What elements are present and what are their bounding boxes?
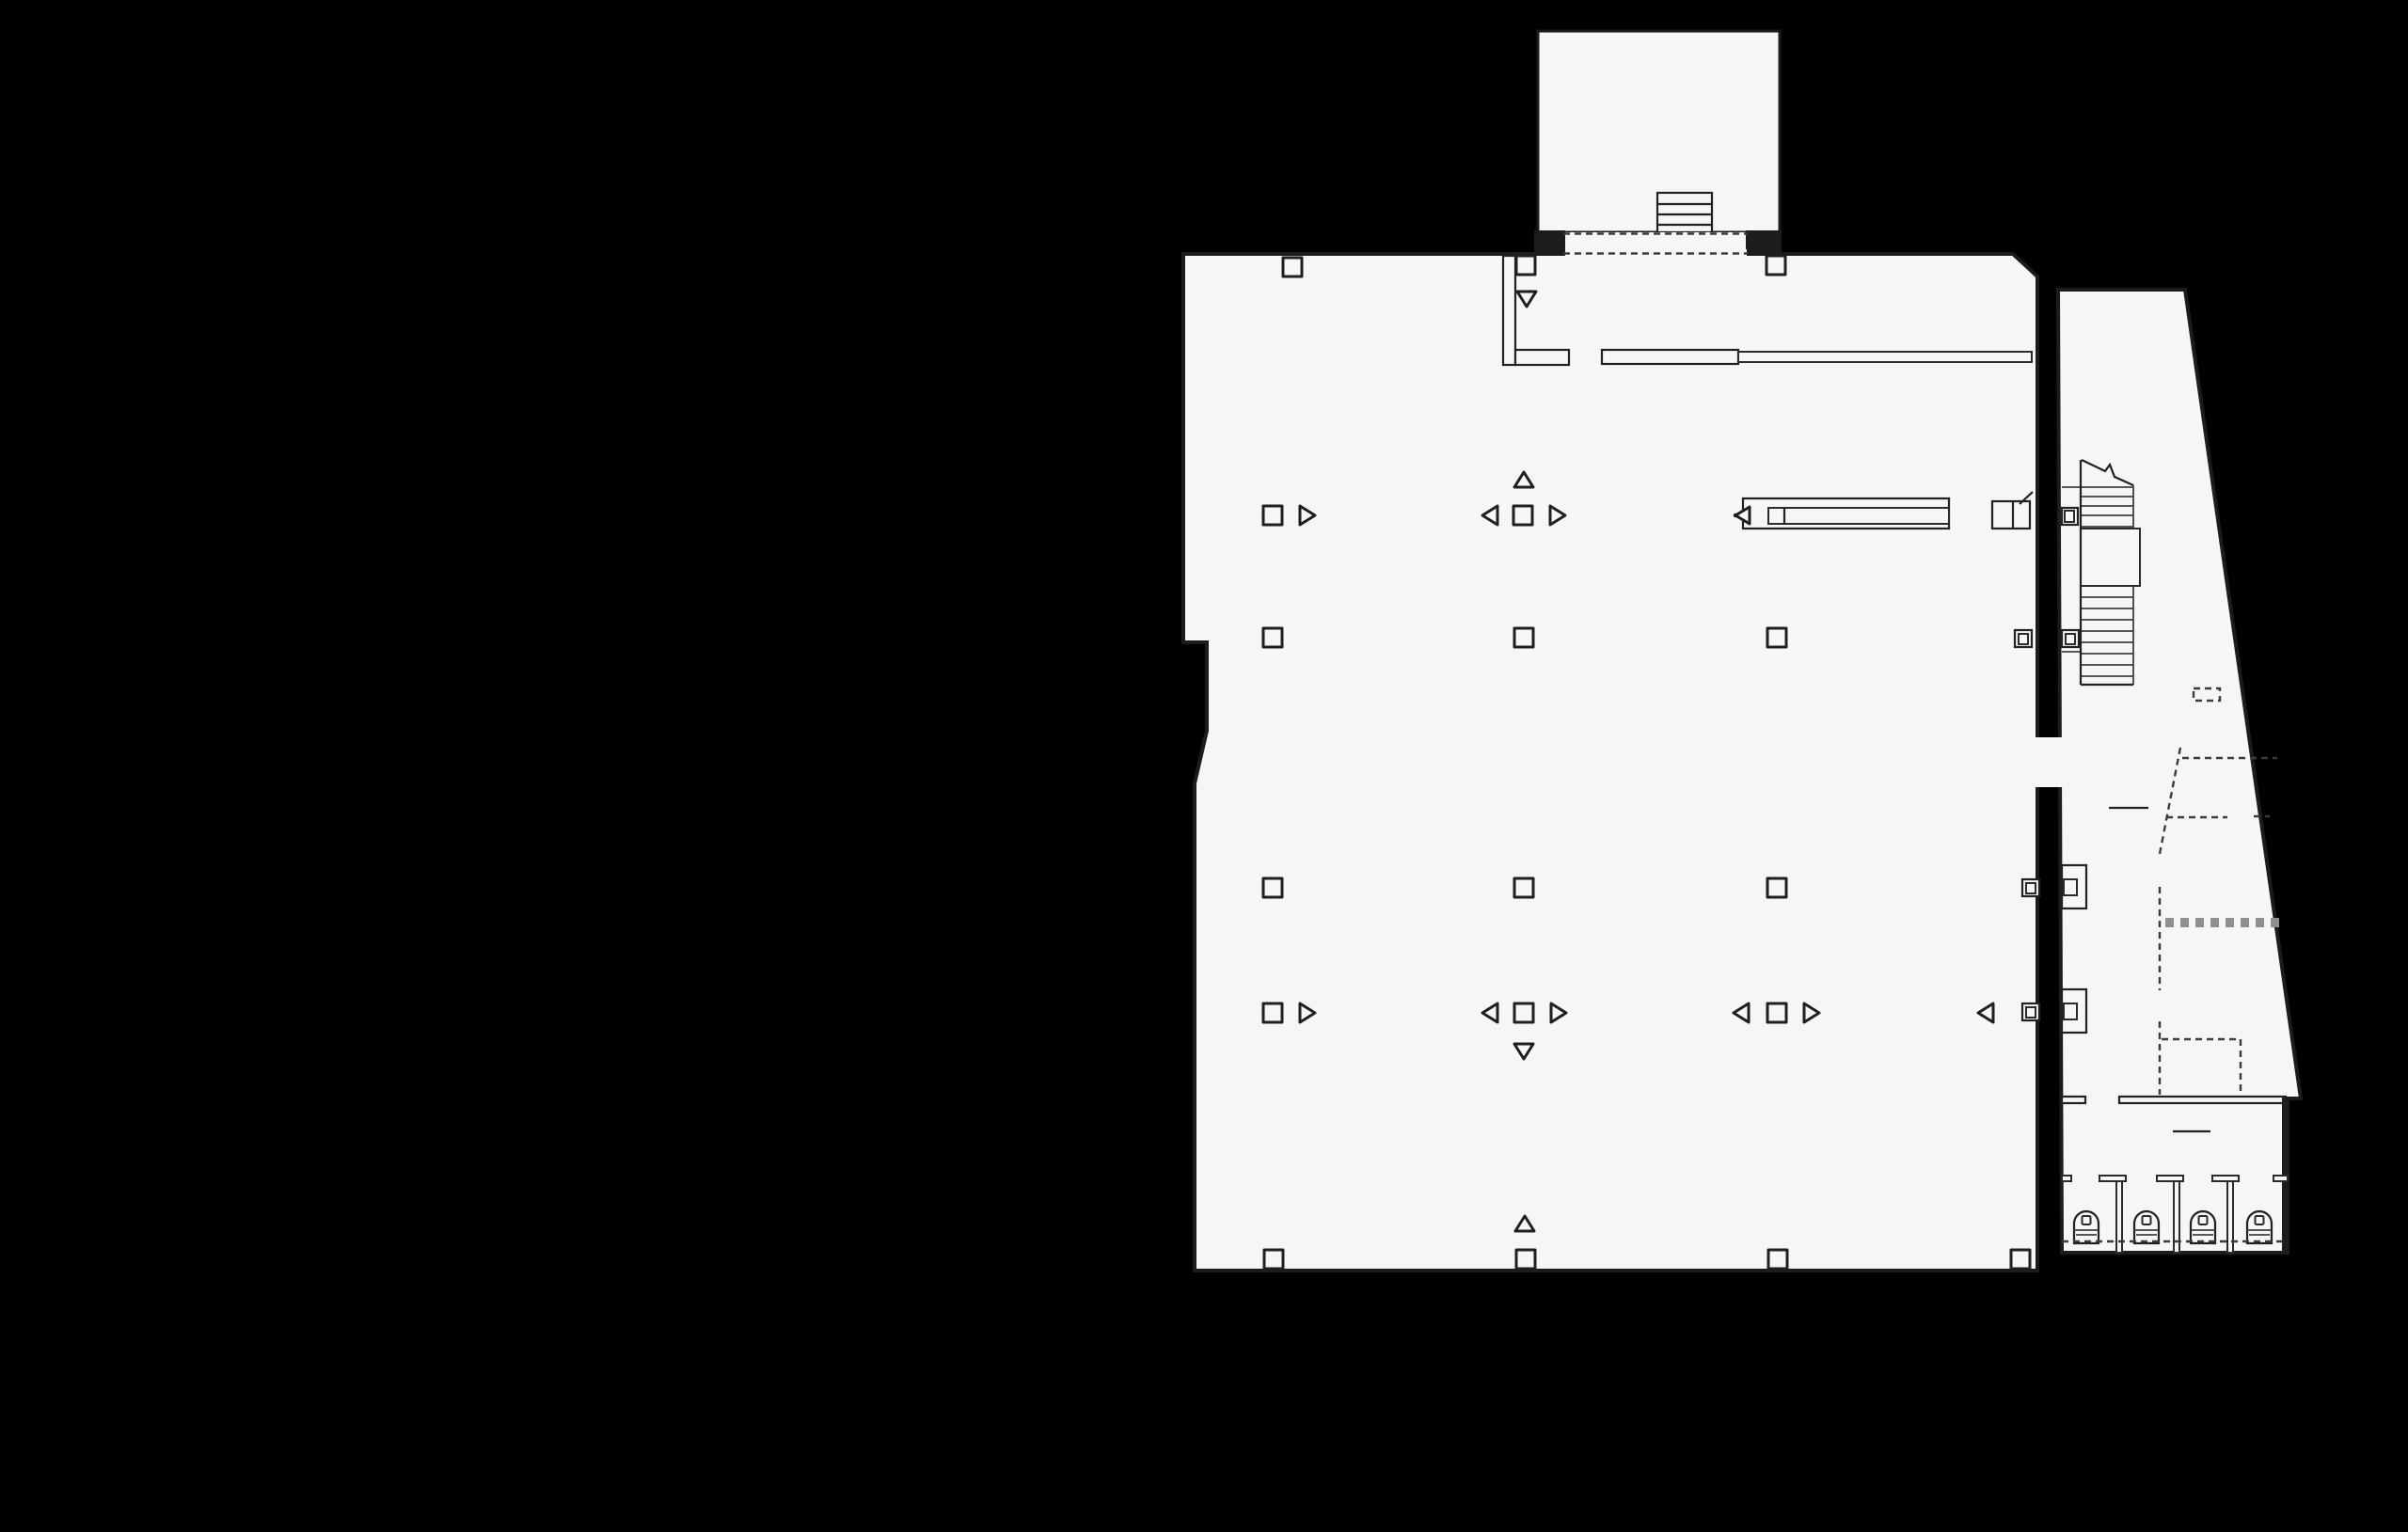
column-square xyxy=(1263,506,1282,525)
door-row1-annex-jamb xyxy=(2062,508,2078,525)
stair-landing xyxy=(2081,529,2140,586)
column-square xyxy=(1514,878,1533,897)
lobby-partition-thick xyxy=(1602,350,1738,364)
restroom-wall-main xyxy=(2119,1097,2286,1103)
column-square xyxy=(1516,256,1535,275)
urinal-drain xyxy=(2143,1216,2151,1224)
column-square xyxy=(1514,1003,1533,1022)
column-square xyxy=(1283,258,1302,276)
urinal-drain xyxy=(2083,1216,2091,1224)
stall-stub-right xyxy=(2273,1176,2288,1181)
counter xyxy=(1734,498,1949,529)
column-square xyxy=(1767,628,1786,647)
entry-steps xyxy=(1657,193,1712,232)
vestibule-wall-stub-left xyxy=(1534,230,1565,256)
plan-svg xyxy=(0,0,2408,1532)
urinal-drain xyxy=(2256,1216,2264,1224)
stall-partition-bar xyxy=(2212,1176,2239,1181)
column-square xyxy=(1263,1003,1282,1022)
column-square xyxy=(1766,256,1785,275)
column-square xyxy=(1513,506,1532,525)
column-square xyxy=(2011,1250,2030,1269)
hall-annex-passage xyxy=(2027,737,2067,787)
column-square xyxy=(1767,878,1786,897)
main-hall-floor xyxy=(1183,254,2037,1271)
lobby-partition-thin xyxy=(1738,352,2032,362)
restroom-wall-left xyxy=(2062,1097,2085,1103)
column-square xyxy=(1516,1250,1535,1269)
column-square xyxy=(1514,628,1533,647)
column-square xyxy=(1264,1250,1283,1269)
floor-plan-canvas xyxy=(0,0,2408,1532)
entry-canopy xyxy=(1534,230,1782,258)
column-square xyxy=(1767,1003,1786,1022)
column-square xyxy=(1768,1250,1787,1269)
vestibule-wall-stub-right xyxy=(1746,230,1782,256)
column-square xyxy=(1263,628,1282,647)
urinal-drain xyxy=(2199,1216,2208,1224)
column-square xyxy=(1263,878,1282,897)
stall-stub-left xyxy=(2062,1176,2071,1181)
